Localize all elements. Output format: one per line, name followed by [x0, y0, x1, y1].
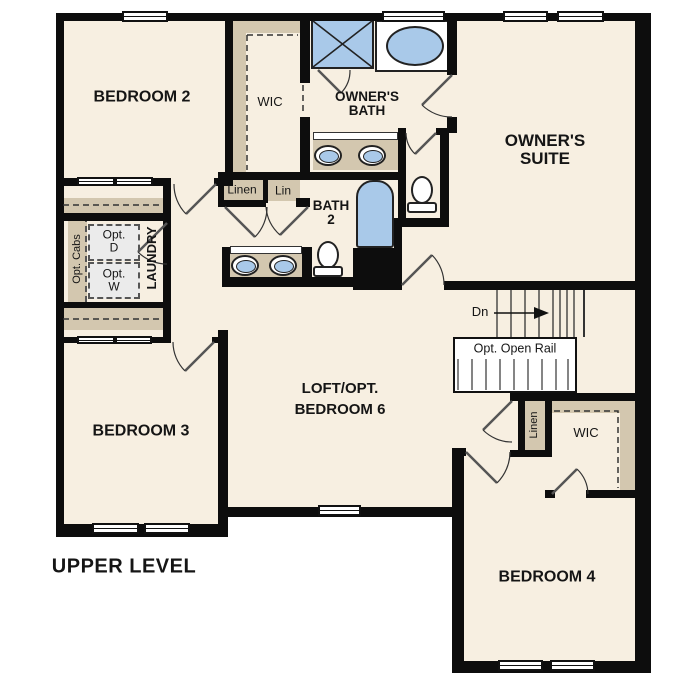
wall-laundry-right [163, 178, 171, 342]
wall-linen4-left [518, 401, 525, 450]
wall-closet1-bottom [56, 213, 167, 221]
room-label-owners-suite: OWNER'S SUITE [505, 132, 586, 168]
label-opt-open-rail: Opt. Open Rail [474, 342, 557, 355]
floor-plan-canvas: BEDROOM 2 WIC OWNER'S BATH OWNER'S SUITE… [0, 0, 687, 687]
room-label-wic-owners: WIC [257, 95, 282, 109]
bath2-sink-left [231, 255, 259, 276]
wall-wic-owners-right-bottom [300, 117, 310, 179]
window-owners-bath-top [382, 11, 445, 22]
owners-wc-toilet-bowl [411, 176, 433, 204]
wall-bedroom3-right [218, 330, 228, 537]
owners-bath-line2: BATH [349, 103, 386, 118]
wall-lin-bottom-stub [296, 198, 310, 207]
loft-line2: BEDROOM 6 [295, 401, 386, 418]
room-label-bedroom3: BEDROOM 3 [93, 424, 190, 441]
window-bedroom3-left [92, 523, 139, 534]
wic-owners-shelf-top [233, 20, 300, 33]
wall-wc-left [398, 133, 406, 218]
owners-bath-line1: OWNER'S [335, 89, 399, 104]
wall-bedroom4-top-corner [452, 448, 466, 456]
window-bedroom4-right [550, 660, 595, 671]
wall-laundry-bottom [56, 302, 171, 308]
wall-exterior-left [56, 13, 64, 537]
wall-bath2-tub-surround [353, 248, 402, 290]
wall-wc-bottom [396, 218, 449, 227]
label-opt-dryer: Opt. D [103, 228, 126, 253]
owners-tub [386, 26, 444, 66]
wall-wc-right [440, 128, 449, 218]
wall-bed3closet-a [56, 337, 77, 343]
bath2-toilet-bowl [317, 241, 339, 269]
wall-bath-suite-divider-top [447, 20, 457, 75]
bath2-line1: BATH [313, 198, 350, 213]
wall-bath2-vanity-right [302, 247, 312, 287]
wall-wic4-bottom-a [545, 490, 555, 498]
bath2-vanity-backsplash [230, 246, 302, 254]
wic-owners-shelf-left [233, 20, 246, 172]
window-owners-suite-top-right [557, 11, 604, 22]
room-label-bath2: BATH 2 [313, 199, 350, 227]
wall-bedroom2-right [225, 20, 233, 179]
room-label-bedroom4: BEDROOM 4 [499, 570, 596, 587]
owners-bath-sink-left [314, 145, 342, 166]
wall-exterior-right [635, 13, 651, 673]
room-label-wic-bedroom4: WIC [573, 426, 598, 440]
window-owners-suite-top-left [503, 11, 548, 22]
window-loft-bottom [318, 505, 361, 516]
opt-dryer-line2: D [110, 240, 119, 254]
wall-linen-top-band [218, 172, 402, 180]
window-bedroom2-top [122, 11, 168, 22]
wall-suite-bottom [444, 281, 637, 290]
owners-wc-toilet-tank [407, 202, 437, 213]
room-label-bedroom2: BEDROOM 2 [94, 90, 191, 107]
wall-bedroom3-bottom [56, 524, 228, 537]
wall-below-stairs [510, 393, 637, 401]
bifold-bedroom3-closet-right [115, 336, 152, 344]
room-label-owners-bath: OWNER'S BATH [335, 90, 399, 118]
bedroom2-closet-shelf [63, 198, 167, 213]
owners-bath-sink-right [358, 145, 386, 166]
wall-bedroom4-left [452, 452, 464, 673]
wall-wic-owners-right-top [300, 20, 310, 83]
wall-below-linen4 [510, 450, 552, 457]
wall-bedroom2-bottom-a [56, 178, 77, 186]
wall-wic4-bottom-b [586, 490, 637, 498]
closet-label-lin-hall: Lin [275, 185, 291, 198]
bedroom3-closet-shelf [63, 307, 163, 330]
bath2-line2: 2 [327, 212, 335, 227]
wall-linen-bottom [220, 200, 266, 207]
bath2-toilet-tank [313, 266, 343, 277]
wall-bed3closet-b [152, 337, 171, 343]
bath2-tub [356, 180, 394, 248]
bifold-bedroom2-closet-right [115, 177, 153, 186]
window-bedroom4-left [498, 660, 543, 671]
room-label-loft: LOFT/OPT. BEDROOM 6 [295, 378, 386, 420]
label-opt-washer: Opt. W [103, 267, 126, 292]
wall-wc-top-a [398, 128, 406, 135]
closet-label-linen-bedroom4: Linen [529, 412, 541, 439]
room-label-laundry: LAUNDRY [145, 226, 159, 289]
loft-line1: LOFT/OPT. [302, 380, 379, 397]
opt-washer-line2: W [108, 279, 119, 293]
bifold-bedroom2-closet-left [77, 177, 115, 186]
owners-bath-vanity-backsplash [313, 132, 398, 140]
label-stairs-down: Dn [472, 305, 489, 319]
wall-linen4-right [545, 398, 552, 450]
label-opt-cabs: Opt. Cabs [72, 234, 84, 284]
wall-bedroom3-door-stub [212, 337, 228, 343]
bifold-bedroom3-closet-left [77, 336, 115, 344]
owners-suite-line1: OWNER'S [505, 131, 586, 150]
plan-title: UPPER LEVEL [52, 557, 196, 578]
shower [311, 19, 374, 69]
bath2-sink-right [269, 255, 297, 276]
closet-label-linen-hall: Linen [227, 184, 256, 197]
window-bedroom3-right [144, 523, 190, 534]
owners-suite-line2: SUITE [520, 149, 570, 168]
